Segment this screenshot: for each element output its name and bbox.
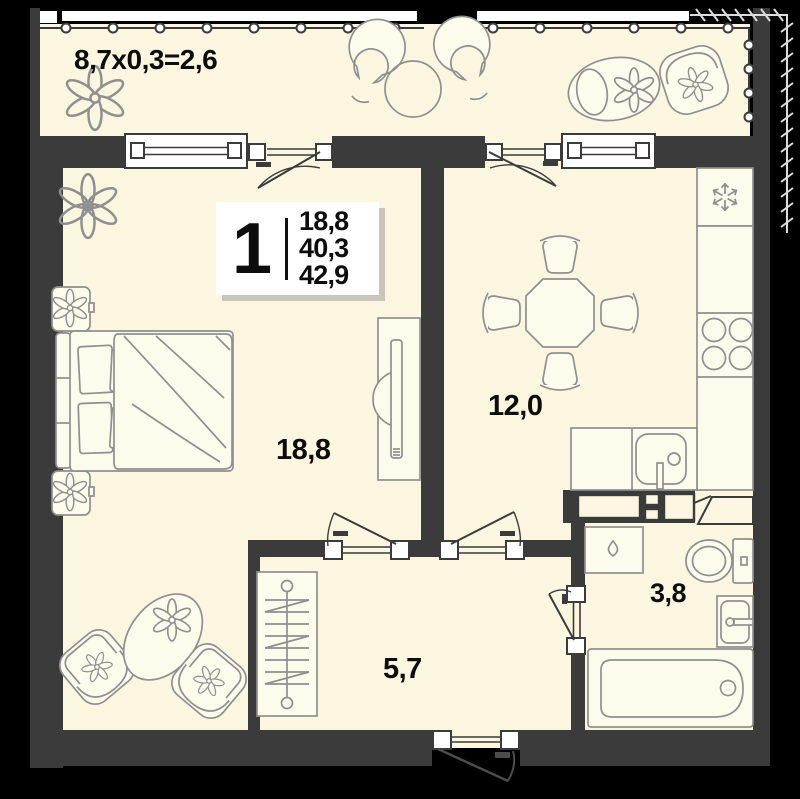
dining-table [526,279,594,347]
bath-area-label: 3,8 [650,578,686,609]
unit-info-card: 1 18,8 40,3 42,9 [216,202,379,295]
window-living [125,134,247,168]
wall-right [753,8,770,766]
wall-living-kitchen [421,136,444,557]
unit-area-total: 42,9 [299,262,348,289]
wall-top-b [332,136,485,168]
kitchen-sink [571,428,697,490]
hall-area-label: 5,7 [383,653,422,686]
nightstand-top [52,287,94,331]
kitchen-area-label: 12,0 [488,390,542,423]
living-area-label: 18,8 [276,434,330,467]
wall-hall-a [248,540,332,557]
bathtub [588,649,753,727]
unit-card-divider [285,218,288,280]
washing-machine [585,527,643,573]
fridge [697,168,753,226]
vent-shaft [578,494,694,520]
nightstand-bottom [52,471,94,515]
unit-areas: 18,8 40,3 42,9 [299,208,348,289]
bathroom-sink [717,596,753,647]
wall-balcony-left [30,8,40,136]
wardrobe [257,572,317,716]
wall-bath-left-bottom [571,650,585,736]
toilet [686,539,753,583]
unit-area-main: 40,3 [299,235,348,262]
double-bed [56,331,233,471]
wall-bottom-a [30,730,432,766]
unit-rooms-count: 1 [232,214,270,284]
wall-top-c [655,136,755,168]
tv-console [373,318,420,480]
unit-area-living: 18,8 [299,208,348,235]
window-kitchen [562,134,655,168]
floor-plan: 8,7x0,3=2,6 18,8 12,0 5,7 3,8 1 18,8 40,… [0,0,800,799]
wall-bottom-b [520,730,770,766]
balcony-dimension-label: 8,7x0,3=2,6 [74,44,217,76]
